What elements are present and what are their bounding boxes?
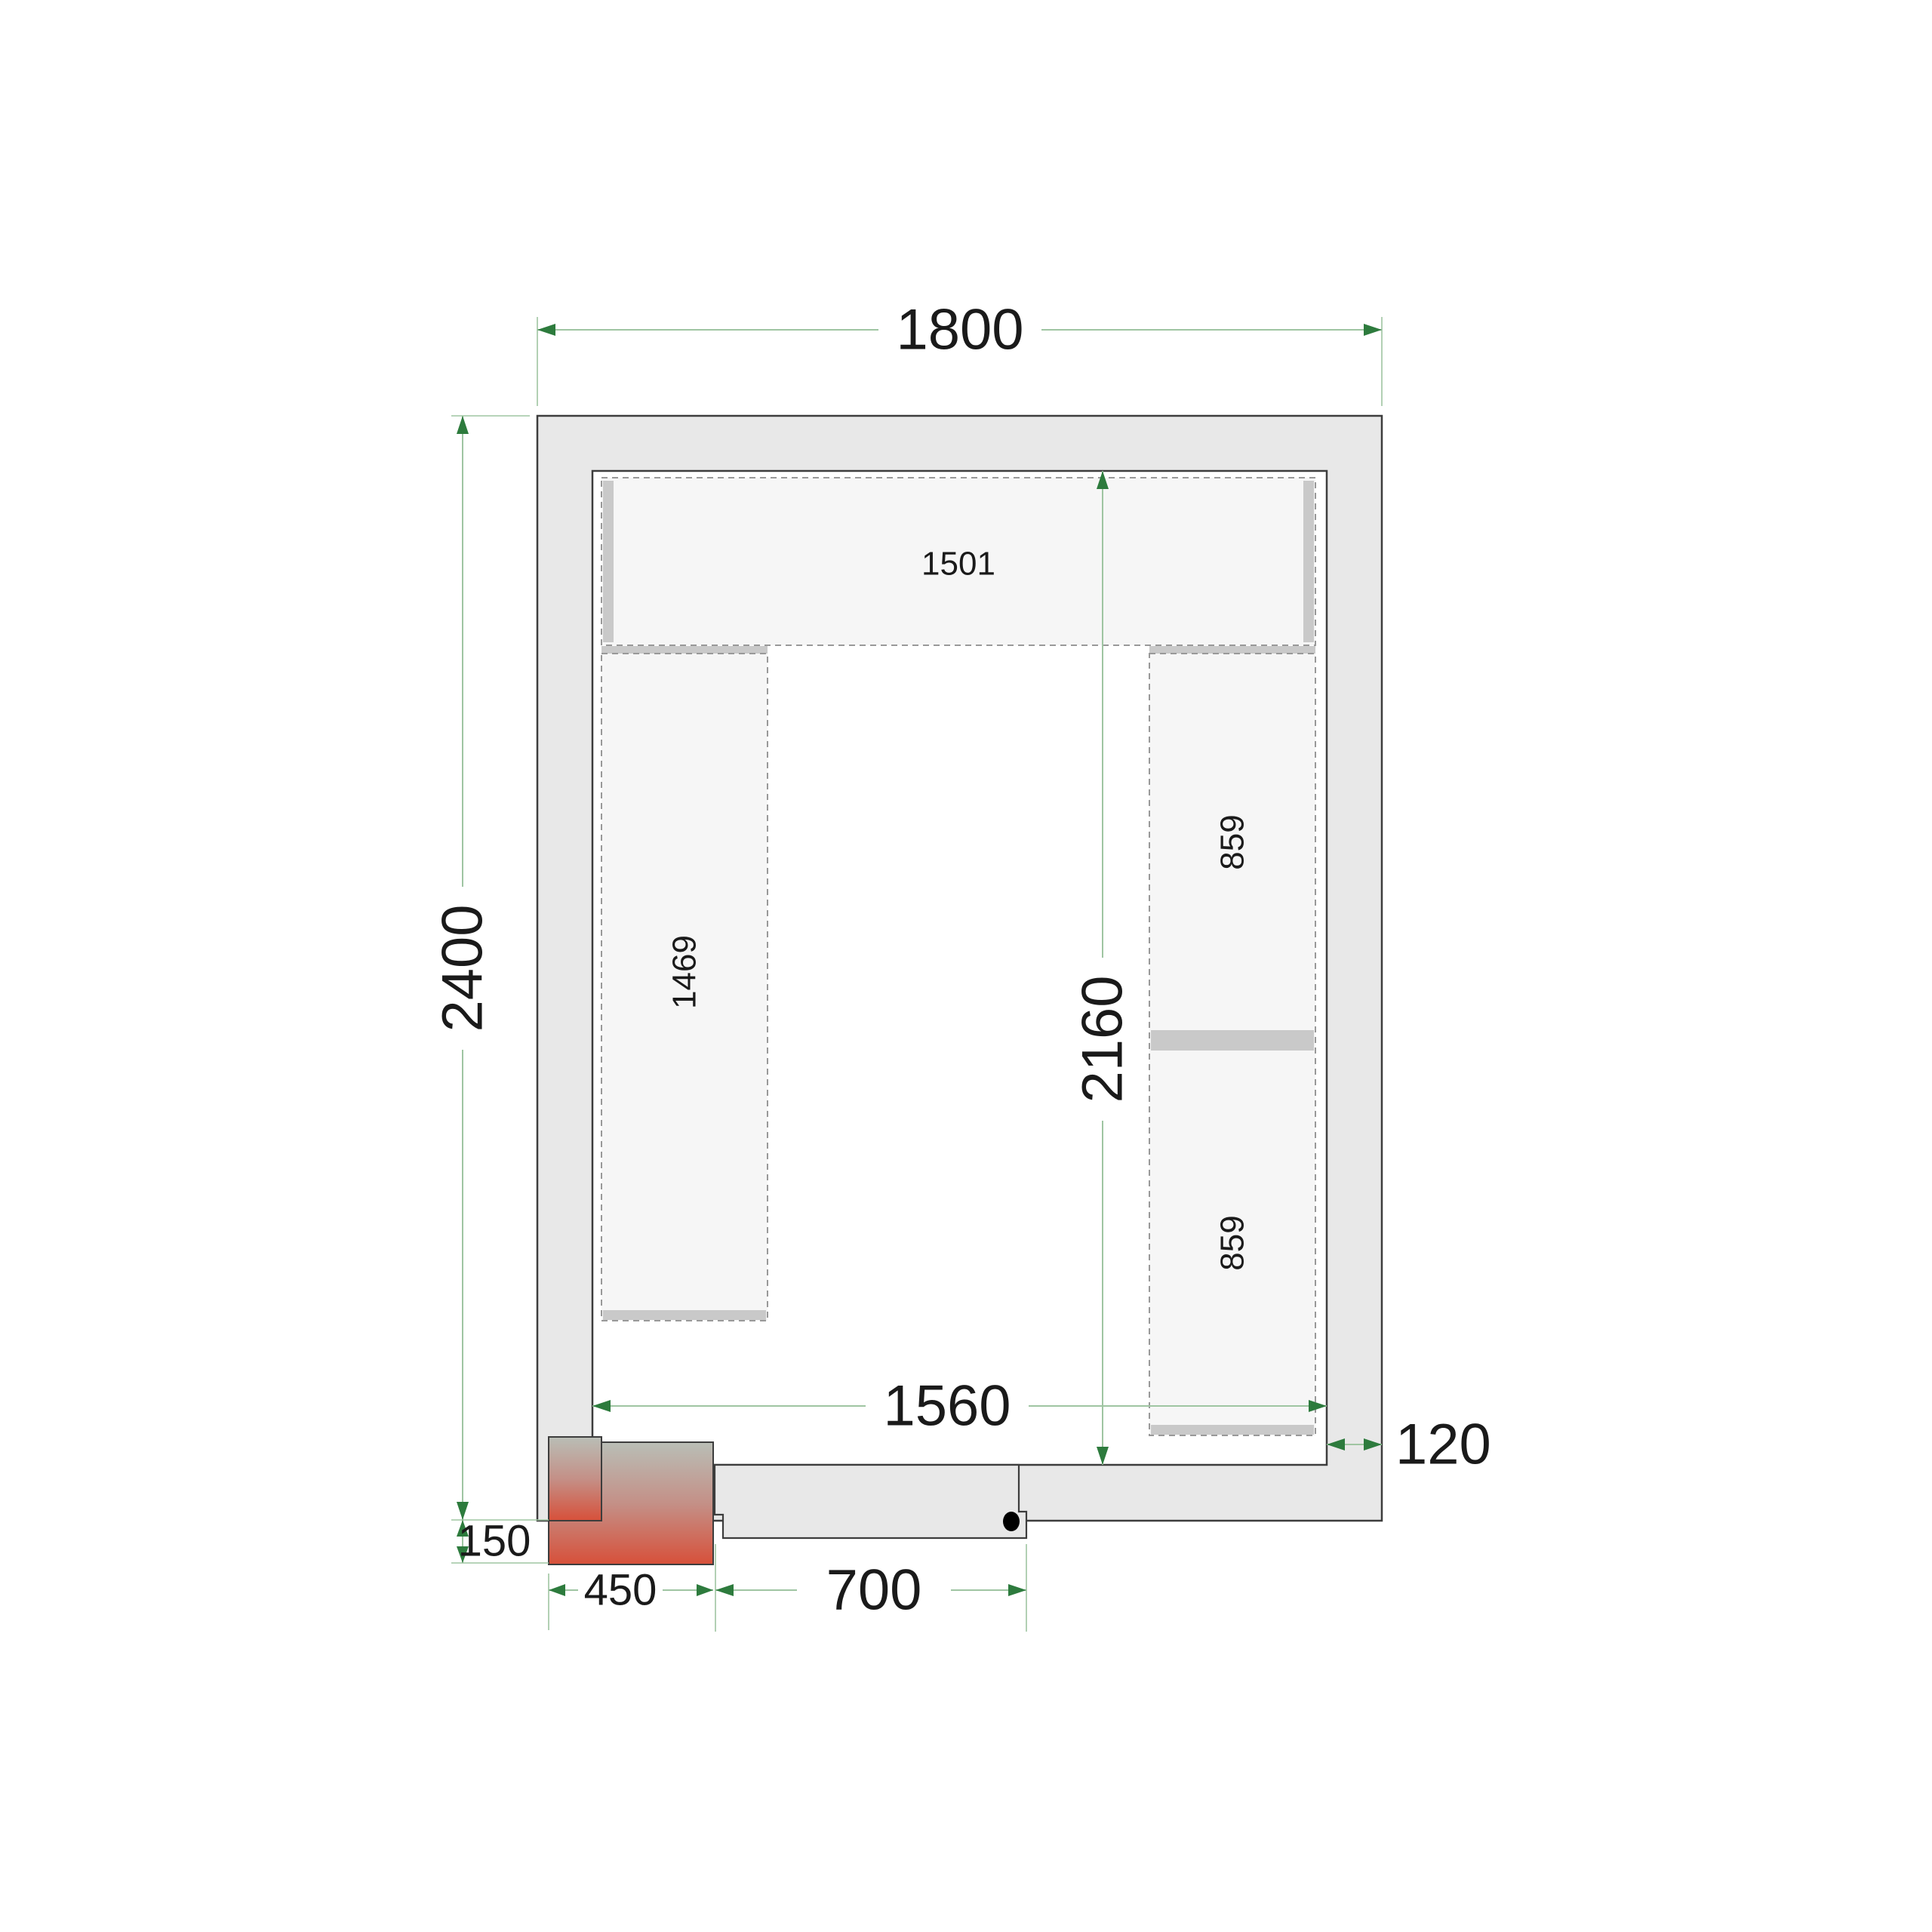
dim-unit-width: 450	[549, 1566, 713, 1631]
dim-wall-thickness-label: 120	[1395, 1413, 1491, 1477]
arrow-right-icon	[1008, 1584, 1026, 1596]
condensing-unit	[549, 1437, 713, 1564]
dim-door-opening-label: 700	[826, 1558, 922, 1623]
arrow-right-icon	[697, 1584, 713, 1596]
shelf-top-right-bracket	[1303, 481, 1314, 642]
door-leaf	[715, 1465, 1026, 1538]
arrow-up-icon	[457, 416, 469, 434]
shelf-left-bottom-bracket	[603, 1310, 766, 1320]
dim-total-depth: 2400	[431, 416, 549, 1520]
dim-total-depth-label: 2400	[431, 904, 495, 1032]
door-handle-dot	[1003, 1512, 1020, 1531]
arrow-right-icon	[1364, 324, 1382, 336]
arrow-left-icon	[549, 1584, 565, 1596]
condensing-unit-side-block	[549, 1437, 601, 1521]
shelf-right-bottom-bracket	[1151, 1425, 1314, 1435]
dim-total-width-label: 1800	[896, 298, 1023, 362]
floor-plan: 1501 1469 859 859 1800	[0, 0, 1932, 1932]
dim-unit-offset-label: 150	[458, 1517, 531, 1566]
shelf-right-divider	[1151, 1030, 1314, 1051]
door	[715, 1465, 1026, 1538]
dim-inner-width-label: 1560	[883, 1374, 1011, 1438]
shelf-top-label: 1501	[921, 546, 995, 583]
shelf-right-lower-label: 859	[1214, 1215, 1251, 1270]
dim-inner-depth-label: 2160	[1071, 975, 1135, 1103]
shelf-top-left-bracket	[603, 481, 614, 642]
dim-total-width: 1800	[537, 298, 1382, 407]
arrow-left-icon	[715, 1584, 734, 1596]
dim-door-opening: 700	[715, 1544, 1026, 1632]
shelf-right-upper-label: 859	[1214, 814, 1251, 869]
dim-unit-offset: 150	[451, 1517, 549, 1566]
arrow-left-icon	[537, 324, 555, 336]
shelf-left-label: 1469	[666, 935, 703, 1009]
dim-unit-width-label: 450	[584, 1566, 657, 1615]
